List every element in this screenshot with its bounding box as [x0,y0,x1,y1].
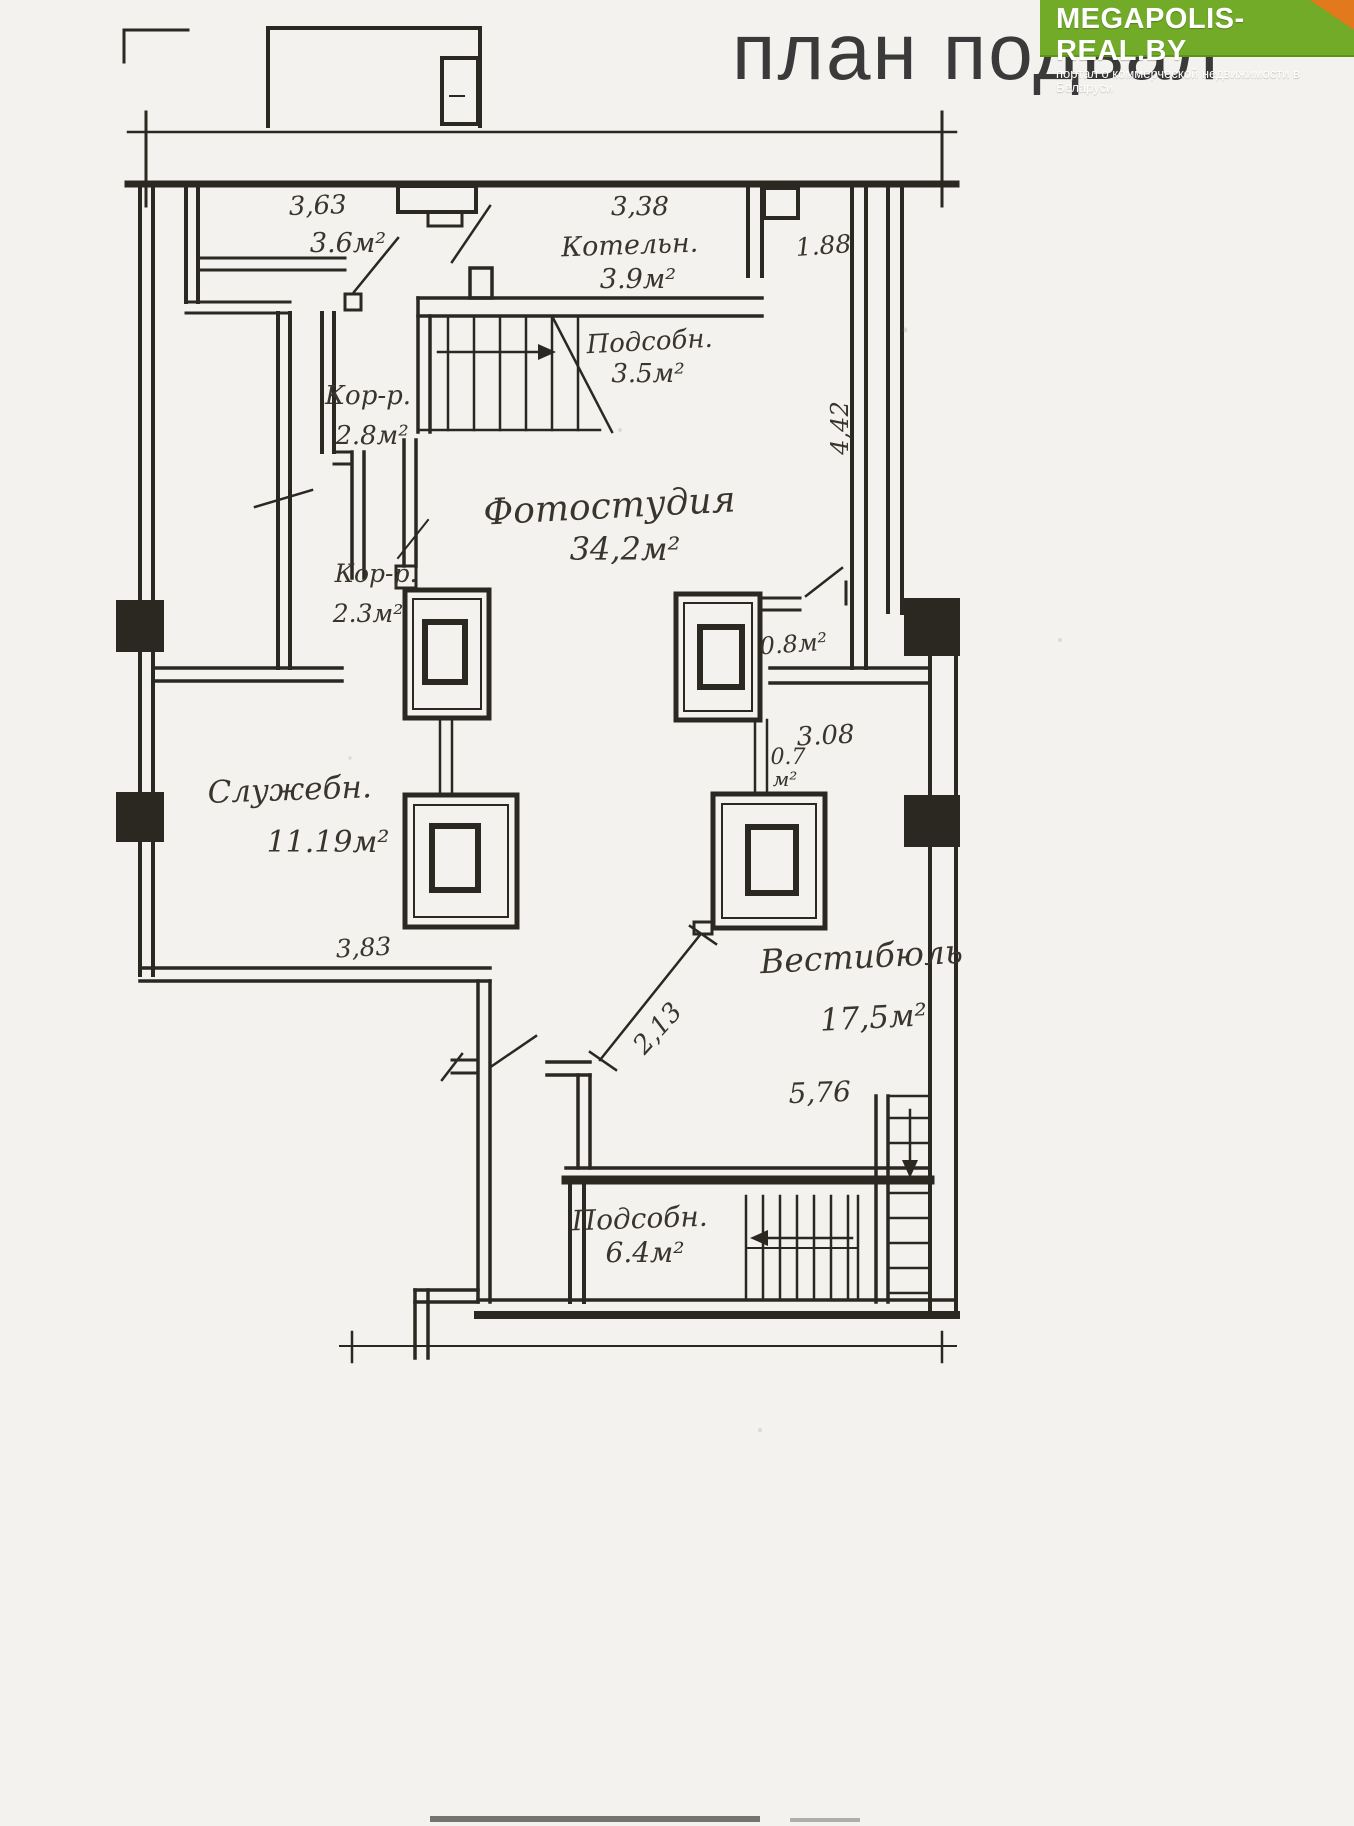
label-room-korr28: Кор-р. [324,381,411,411]
chimney-block [268,28,480,126]
logo-badge: MEGAPOLIS-REAL.BY портал о коммерческой … [1040,0,1354,57]
column-lower-right [713,794,825,928]
column-lower-left [405,795,517,927]
label-dim-188: 1.88 [795,229,853,262]
label-dim-338: 3,38 [611,192,669,222]
staircase-upper [418,316,612,432]
label-area-podsobn64: 6.4м² [606,1236,685,1269]
label-area-3-6: 3.6м² [310,228,386,259]
label-area-0-8: 0.8м² [759,628,828,661]
wall-pier-left-upper [116,600,164,652]
logo-corner-fold-icon [1310,0,1354,30]
label-area-vestibul: 17,5м² [819,997,928,1039]
wall-pier-left-lower [116,792,164,842]
label-room-podsobn35: Подсобн. [585,324,714,361]
wall-pier-right-lower [904,795,960,847]
label-dim-07-line2: м² [773,767,798,791]
label-area-korr28: 2.8м² [334,421,408,451]
label-area-fotostudia: 34,2м² [570,530,681,568]
logo-tagline: портал о коммерческой недвижимости в Бел… [1040,67,1354,95]
label-room-vestibul: Вестибюль [758,932,964,982]
staircase-vestibule [876,1096,930,1302]
label-dim-576: 5,76 [788,1075,851,1110]
label-area-podsobn35: 3.5м² [611,359,684,389]
column-upper-right [676,594,760,720]
label-room-fotostudia: Фотостудия [482,479,736,533]
label-area-sluzhebn: 11.19м² [267,825,390,860]
label-dim-442-vertical: 4,42 [826,401,854,455]
label-room-sluzhebn: Служебн. [207,769,372,811]
label-room-koteln: Котельн. [560,228,699,264]
label-dim-213-rotated: 2,13 [627,997,689,1061]
label-dim-363: 3,63 [288,190,347,222]
wall-pier-right-upper [904,598,960,656]
label-room-podsobn64: Подсобн. [570,1200,708,1238]
floor-plan-drawing: 3,63 3.6м² 3,38 Котельн. 3.9м² 1.88 Подс… [0,0,1354,1826]
staircase-bottom [746,1196,858,1298]
column-duct-lines [440,718,767,795]
label-dim-383: 3,83 [335,932,392,964]
label-area-koteln: 3.9м² [600,264,676,295]
label-room-korr23: Кор-р. [334,559,418,588]
scanned-page: план подвал MEGAPOLIS-REAL.BY портал о к… [0,0,1354,1826]
logo-text: MEGAPOLIS-REAL.BY [1040,0,1354,67]
label-area-korr23: 2.3м² [332,599,404,628]
column-upper-left [405,590,489,718]
